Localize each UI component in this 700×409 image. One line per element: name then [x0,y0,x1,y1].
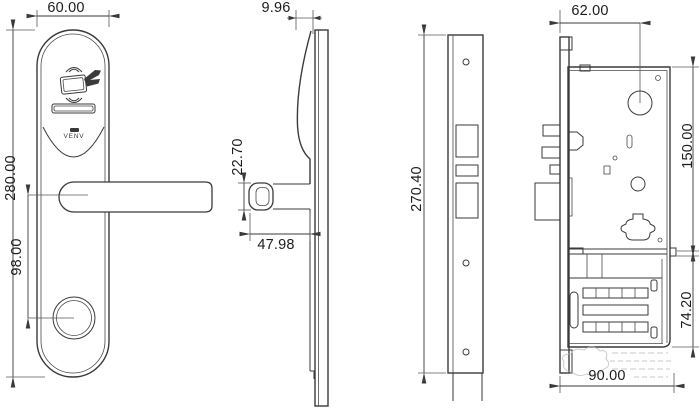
front-plate-view [6,10,212,377]
dim-handle-length-label: 47.98 [246,237,306,253]
back-plate [315,30,328,406]
latch-opening [456,125,478,157]
latch-bolt [542,147,560,158]
dim-spindle-offset-label: 62.00 [562,3,618,19]
deadbolt [535,183,560,220]
screw-hole [463,260,469,266]
aux-opening [456,165,478,176]
dim-handle-to-cylinder-label: 98.00 [9,230,25,284]
dim-front-width-label: 60.00 [36,0,96,16]
brand-logo: VENV [57,128,91,146]
latch-head [569,132,583,150]
clutch-module [570,280,657,338]
display-slot [52,104,95,113]
card-swipe-icon [60,68,101,103]
side-profile-view [238,10,328,406]
dim-module-height-label: 74.20 [679,282,695,338]
dim-cover-thickness-label: 9.96 [254,0,298,16]
dim-faceplate-height-label: 270.40 [409,157,425,221]
faceplate-view [418,35,483,401]
dim-case-height-label: 150.00 [680,115,696,177]
deadbolt-opening [456,183,478,218]
drawing-linework [0,0,700,409]
cover-curve [297,31,311,184]
screw-hole [463,349,469,355]
screw-hole [656,76,661,81]
aux-bolt [550,165,560,174]
cylinder-cam-hole [621,214,655,240]
dim-handle-section-label: 22.70 [230,129,246,185]
screw-hole [463,59,469,65]
lock-body-view [535,10,699,393]
follower-hole [631,177,645,191]
dim-case-depth-label: 90.00 [579,368,635,384]
brand-logo-mark [70,128,79,132]
latch-bolt [543,125,560,136]
dim-front-height-label: 280.00 [3,146,19,210]
technical-drawing: 60.00 280.00 98.00 9.96 22.70 47.98 270.… [0,0,700,409]
hand-icon [84,70,101,87]
brand-logo-text: VENV [64,133,85,140]
lever-handle [59,182,212,212]
